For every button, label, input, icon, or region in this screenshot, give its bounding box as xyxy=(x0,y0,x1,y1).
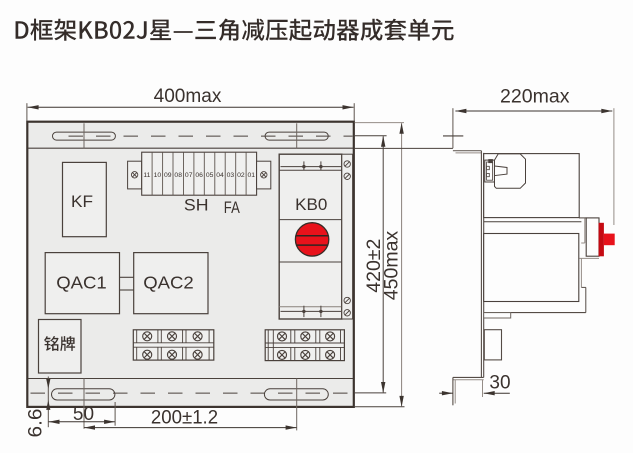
svg-text:450max: 450max xyxy=(381,231,403,301)
svg-text:03: 03 xyxy=(227,172,235,179)
svg-text:11: 11 xyxy=(143,172,150,179)
svg-text:SH: SH xyxy=(184,197,209,215)
svg-text:07: 07 xyxy=(185,172,193,179)
svg-text:30: 30 xyxy=(489,373,510,394)
svg-text:04: 04 xyxy=(216,172,224,179)
svg-text:6.6: 6.6 xyxy=(26,409,47,438)
svg-text:QAC2: QAC2 xyxy=(143,273,194,293)
svg-text:10: 10 xyxy=(154,172,162,179)
svg-text:06: 06 xyxy=(195,172,203,179)
svg-text:QAC1: QAC1 xyxy=(56,273,107,293)
svg-text:400max: 400max xyxy=(154,86,222,107)
svg-text:220max: 220max xyxy=(500,87,570,108)
svg-text:02: 02 xyxy=(237,172,245,179)
svg-text:KF: KF xyxy=(71,193,93,211)
svg-text:05: 05 xyxy=(206,172,214,179)
svg-text:KB0: KB0 xyxy=(295,195,327,214)
svg-text:09: 09 xyxy=(164,172,172,179)
svg-text:01: 01 xyxy=(248,172,256,179)
svg-text:08: 08 xyxy=(174,172,182,179)
svg-text:200±1.2: 200±1.2 xyxy=(151,407,218,428)
svg-text:FA: FA xyxy=(224,198,240,217)
